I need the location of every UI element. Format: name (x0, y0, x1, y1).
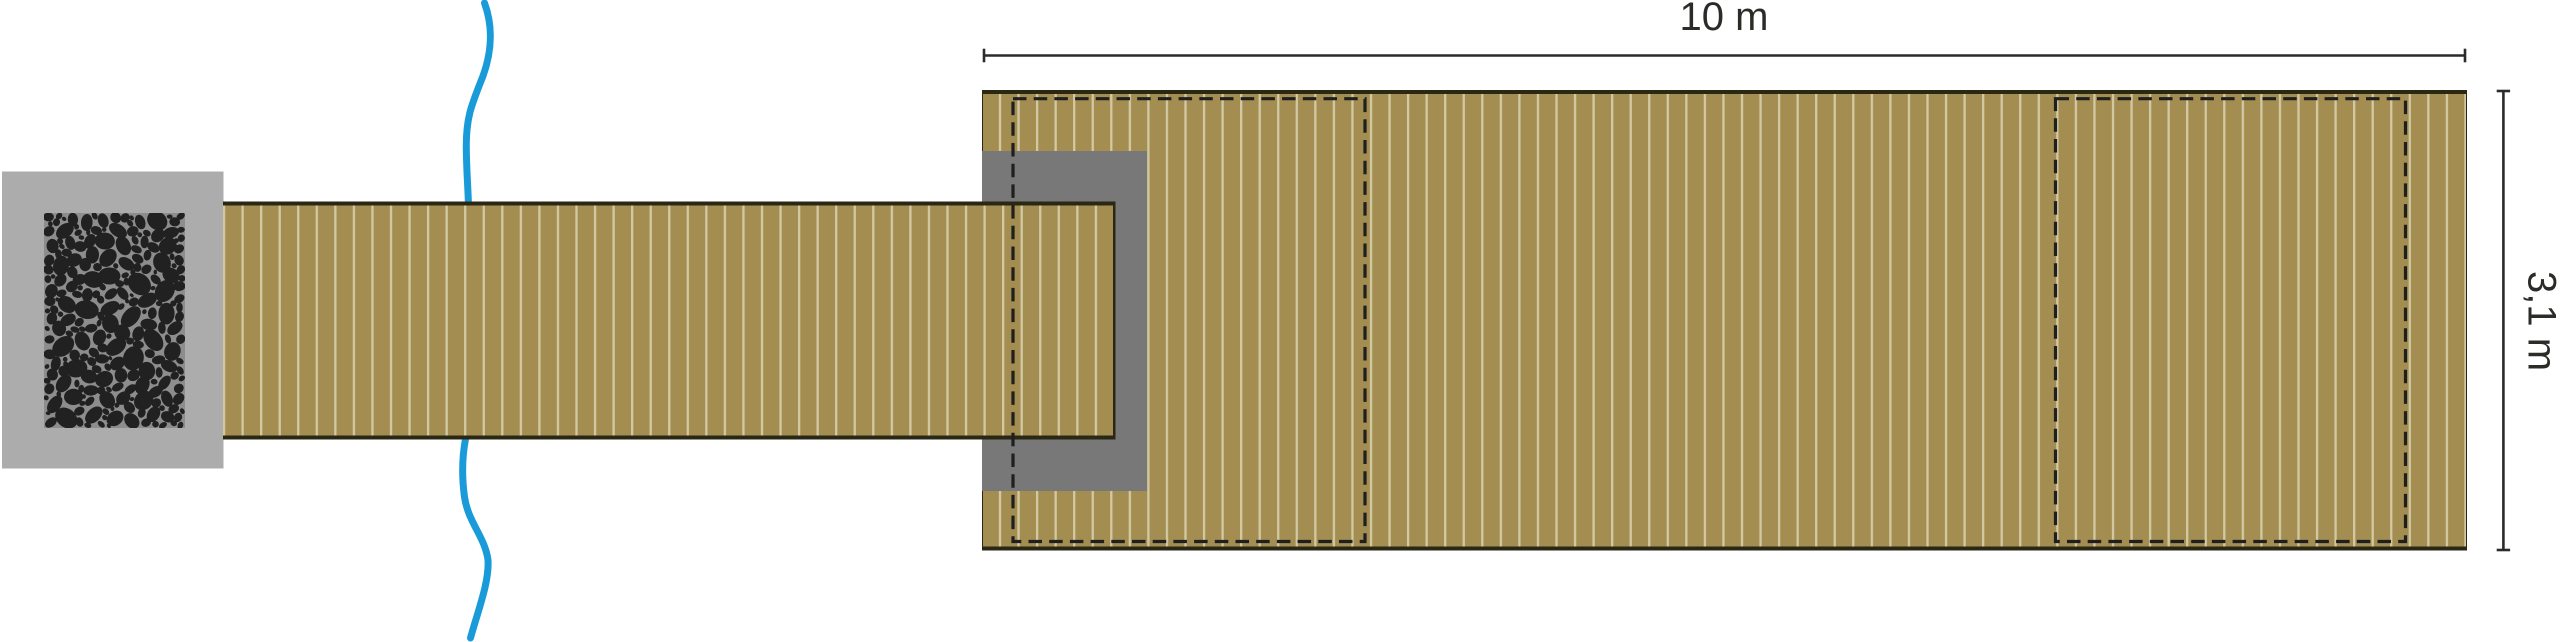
svg-text:10 m: 10 m (1680, 0, 1769, 39)
svg-text:3,1 m: 3,1 m (2519, 271, 2560, 371)
